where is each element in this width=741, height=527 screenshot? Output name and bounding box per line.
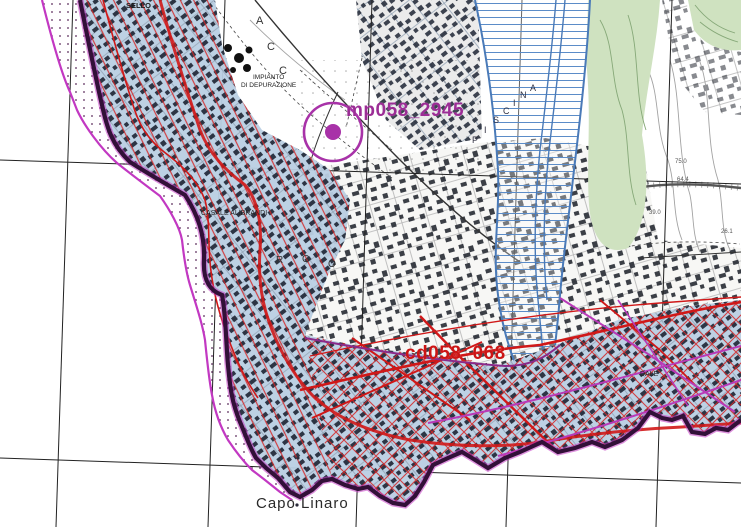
monitoring-point-dot[interactable] [325, 124, 341, 140]
map-artwork [0, 0, 741, 527]
map-canvas: mp058_2945cd058_068Capo LinaroSELLOIMPIA… [0, 0, 741, 527]
